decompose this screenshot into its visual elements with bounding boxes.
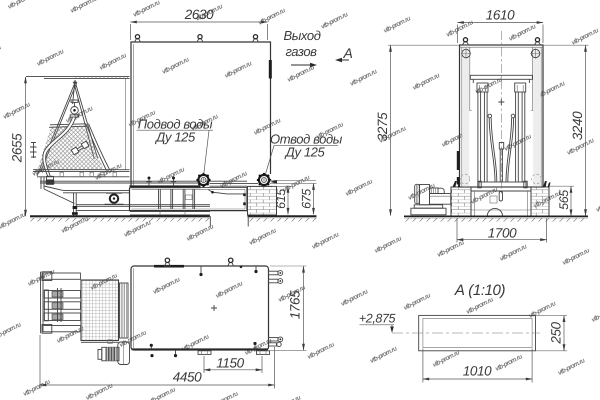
svg-text:+2,875: +2,875 [359,312,396,326]
svg-text:1150: 1150 [216,356,244,371]
svg-text:1610: 1610 [486,8,515,23]
svg-text:А (1:10): А (1:10) [454,282,506,299]
svg-text:675: 675 [300,189,314,209]
svg-text:1765: 1765 [288,290,303,319]
svg-text:Ду 125: Ду 125 [284,145,326,160]
svg-text:2655: 2655 [10,133,25,163]
svg-text:565: 565 [557,190,571,210]
svg-text:2630: 2630 [184,7,214,22]
svg-text:газов: газов [285,44,317,59]
svg-text:Ду 125: Ду 125 [154,130,196,145]
svg-text:615: 615 [274,189,288,209]
svg-text:Выход: Выход [283,28,320,43]
svg-text:3275: 3275 [375,112,390,141]
svg-text:1700: 1700 [488,226,517,241]
svg-text:4450: 4450 [173,370,202,385]
svg-text:3240: 3240 [570,111,585,140]
svg-text:1010: 1010 [463,364,492,379]
svg-text:А: А [343,45,353,61]
svg-text:250: 250 [549,321,564,344]
